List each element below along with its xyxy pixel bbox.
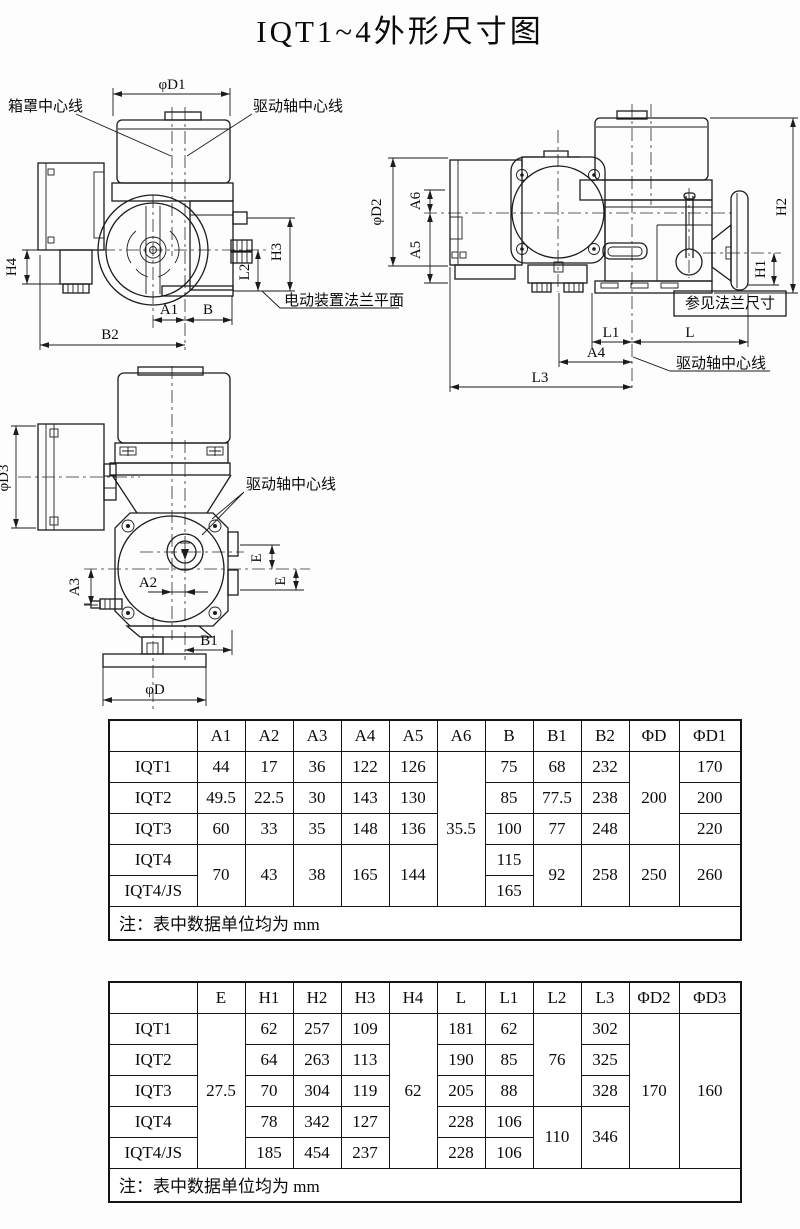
row-label: IQT4 [109,844,197,875]
column-header: A5 [389,720,437,751]
dimension-value: 325 [581,1044,629,1075]
dimension-value: 62 [389,1013,437,1168]
mounting-flange [103,626,212,667]
dimension-value: 38 [293,844,341,906]
dim-label-e-upper: E [249,553,265,562]
dim-label-b2: B2 [101,327,119,343]
leader-label-shaft-centerline: 驱动轴中心线 [676,355,766,372]
dimension-value: 49.5 [197,782,245,813]
dimension-table-b: EH1H2H3H4LL1L2L3ΦD2ΦD3IQT127.56225710962… [108,981,742,1203]
table-row: IQT470433816514411592258250260 [109,844,741,875]
column-header: A2 [245,720,293,751]
dimension-value: 64 [245,1044,293,1075]
dimension-value: 35.5 [437,751,485,906]
dim-label-a3: A3 [67,578,83,596]
leader-label-shaft-centerline: 驱动轴中心线 [246,476,336,493]
dim-label-a1: A1 [160,302,178,318]
dimension-value: 126 [389,751,437,782]
dim-label-l: L [685,325,694,341]
dimension-value: 200 [629,751,679,844]
handwheel [712,191,748,290]
front-view: φD1 箱罩中心线 驱动轴中心线 H4 H3 L2 电动装置法兰平面 A1 [4,77,404,350]
dimension-value: 248 [581,813,629,844]
column-header [109,982,197,1013]
dimension-value: 122 [341,751,389,782]
note-row: 注：表中数据单位均为 mm [109,1168,741,1202]
dim-label-b1: B1 [200,633,218,649]
dimension-value: 43 [245,844,293,906]
dimension-value: 113 [341,1044,389,1075]
leader-label-shaft-centerline: 驱动轴中心线 [253,98,343,115]
dimension-value: 302 [581,1013,629,1044]
terminal-box [38,163,104,293]
dimension-value: 85 [485,782,533,813]
dimension-value: 70 [197,844,245,906]
dimension-value: 70 [245,1075,293,1106]
dimension-value: 220 [679,813,741,844]
row-label: IQT3 [109,813,197,844]
dimension-value: 77 [533,813,581,844]
dimension-value: 27.5 [197,1013,245,1168]
column-header: L1 [485,982,533,1013]
dimension-value: 160 [679,1013,741,1168]
dimension-value: 258 [581,844,629,906]
page: IQT1~4外形尺寸图 [0,0,800,1229]
column-header: B1 [533,720,581,751]
dimension-value: 136 [389,813,437,844]
dimension-value: 33 [245,813,293,844]
dimension-value: 148 [341,813,389,844]
dim-label-phi-d3: φD3 [0,465,12,492]
dimension-value: 328 [581,1075,629,1106]
column-header: ΦD2 [629,982,679,1013]
row-label: IQT4/JS [109,1137,197,1168]
dimension-value: 143 [341,782,389,813]
dimension-value: 127 [341,1106,389,1137]
header-row: A1A2A3A4A5A6BB1B2ΦDΦD1 [109,720,741,751]
dimension-value: 454 [293,1137,341,1168]
row-label: IQT1 [109,1013,197,1044]
dimension-value: 228 [437,1137,485,1168]
dimension-value: 75 [485,751,533,782]
dimension-drawing: φD1 箱罩中心线 驱动轴中心线 H4 H3 L2 电动装置法兰平面 A1 [0,55,800,715]
dim-label-l2: L2 [237,264,253,281]
column-header: L2 [533,982,581,1013]
dim-label-a6: A6 [408,191,424,210]
dimension-value: 62 [245,1013,293,1044]
column-header: H1 [245,982,293,1013]
table-note: 注：表中数据单位均为 mm [109,906,741,940]
column-header [109,720,197,751]
row-label: IQT3 [109,1075,197,1106]
dim-label-l1: L1 [603,325,620,341]
dimension-value: 205 [437,1075,485,1106]
dimension-value: 109 [341,1013,389,1044]
column-header: ΦD [629,720,679,751]
dimension-value: 170 [679,751,741,782]
dimension-value: 200 [679,782,741,813]
dim-label-e-lower: E [273,576,289,585]
dimension-value: 304 [293,1075,341,1106]
dim-label-a4: A4 [587,345,606,361]
dimension-value: 17 [245,751,293,782]
dimension-value: 92 [533,844,581,906]
dimension-value: 185 [245,1137,293,1168]
dim-label-phi-d: φD [145,682,165,698]
dimension-value: 181 [437,1013,485,1044]
motor-cover [110,367,231,513]
row-label: IQT1 [109,751,197,782]
dimension-value: 119 [341,1075,389,1106]
dim-label-phi-d1: φD1 [159,77,186,93]
column-header: L [437,982,485,1013]
dimension-value: 342 [293,1106,341,1137]
dimension-value: 144 [389,844,437,906]
dim-label-h1: H1 [753,260,769,278]
see-flange-label: 参见法兰尺寸 [685,295,775,312]
row-label: IQT2 [109,1044,197,1075]
dimension-value: 346 [581,1106,629,1168]
column-header: ΦD3 [679,982,741,1013]
dimension-value: 85 [485,1044,533,1075]
row-label: IQT2 [109,782,197,813]
dimension-value: 165 [341,844,389,906]
dimension-value: 106 [485,1106,533,1137]
row-label: IQT4/JS [109,875,197,906]
dimension-value: 110 [533,1106,581,1168]
dimension-value: 237 [341,1137,389,1168]
dimension-value: 44 [197,751,245,782]
dimension-value: 257 [293,1013,341,1044]
column-header: A6 [437,720,485,751]
motor-cover [112,112,233,201]
note-row: 注：表中数据单位均为 mm [109,906,741,940]
dimension-value: 260 [679,844,741,906]
dim-label-phi-d2: φD2 [369,199,385,226]
motor-cover [580,111,712,200]
column-header: L3 [581,982,629,1013]
dim-label-a2: A2 [139,575,157,591]
dimension-value: 78 [245,1106,293,1137]
column-header: E [197,982,245,1013]
dimension-value: 22.5 [245,782,293,813]
table-note: 注：表中数据单位均为 mm [109,1168,741,1202]
dimension-value: 60 [197,813,245,844]
dimension-value: 88 [485,1075,533,1106]
dimension-value: 130 [389,782,437,813]
column-header: H2 [293,982,341,1013]
dimension-value: 36 [293,751,341,782]
dimension-value: 30 [293,782,341,813]
dim-label-l3: L3 [532,370,549,386]
dimension-value: 35 [293,813,341,844]
dimension-value: 170 [629,1013,679,1168]
dimension-value: 165 [485,875,533,906]
header-row: EH1H2H3H4LL1L2L3ΦD2ΦD3 [109,982,741,1013]
column-header: A3 [293,720,341,751]
table-row: IQT144173612212635.57568232200170 [109,751,741,782]
dimension-value: 77.5 [533,782,581,813]
dim-label-h2: H2 [774,198,790,216]
leader-label-flange-plane: 电动装置法兰平面 [284,292,404,309]
leader-label-box-centerline: 箱罩中心线 [8,98,83,115]
column-header: A4 [341,720,389,751]
dimension-value: 100 [485,813,533,844]
dimension-value: 68 [533,751,581,782]
dimension-value: 106 [485,1137,533,1168]
column-header: H4 [389,982,437,1013]
dimension-value: 190 [437,1044,485,1075]
dim-label-a5: A5 [408,241,424,259]
dim-label-h3: H3 [269,243,285,261]
row-label: IQT4 [109,1106,197,1137]
dimension-value: 76 [533,1013,581,1106]
dimension-value: 228 [437,1106,485,1137]
column-header: B [485,720,533,751]
gearbox [84,513,238,626]
top-view: φD3 驱动轴中心线 E E A3 A2 B1 [0,366,336,710]
dim-label-b: B [203,302,213,318]
column-header: A1 [197,720,245,751]
page-title: IQT1~4外形尺寸图 [0,6,800,51]
dimension-value: 250 [629,844,679,906]
table-row: IQT127.562257109621816276302170160 [109,1013,741,1044]
thrust-base-housing [595,193,712,293]
dimension-value: 62 [485,1013,533,1044]
column-header: ΦD1 [679,720,741,751]
column-header: B2 [581,720,629,751]
dimension-value: 238 [581,782,629,813]
column-header: H3 [341,982,389,1013]
dimension-table-a: A1A2A3A4A5A6BB1B2ΦDΦD1IQT144173612212635… [108,719,742,941]
dimension-value: 232 [581,751,629,782]
dimension-value: 115 [485,844,533,875]
dim-label-h4: H4 [4,257,20,276]
side-view: φD2 A6 A5 H2 H1 参见法兰尺寸 L1 L A4 [369,104,798,392]
dimension-value: 263 [293,1044,341,1075]
